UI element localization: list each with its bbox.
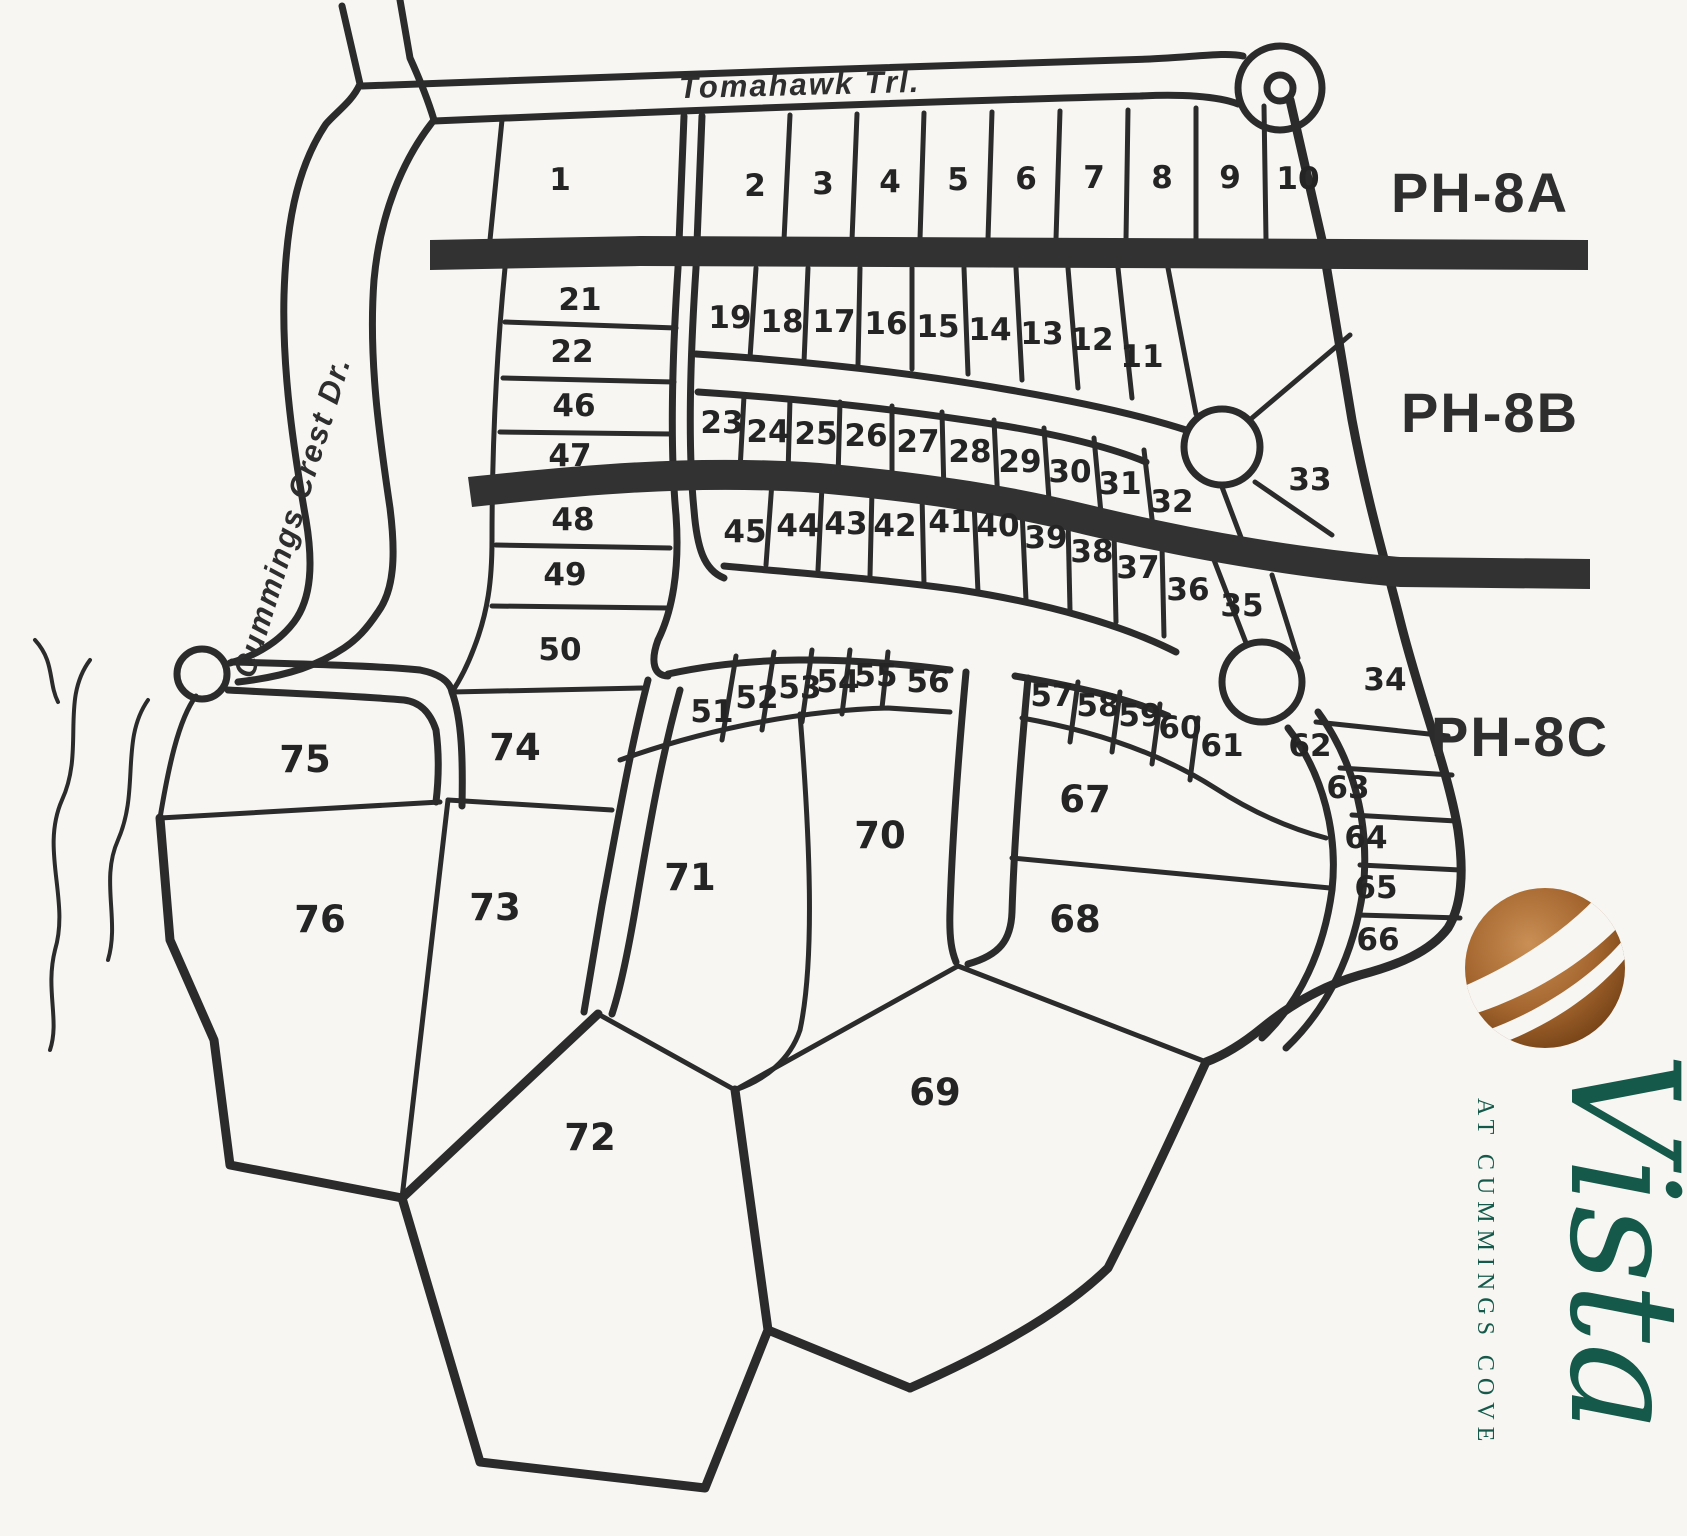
lot-51-label: 51 [690,694,733,730]
lot-9-label: 9 [1219,160,1241,196]
lot-44-label: 44 [776,508,819,544]
lot-56-label: 56 [906,664,949,700]
lot-21-label: 21 [558,282,601,318]
lot-22-label: 22 [550,334,593,370]
lot-37-label: 37 [1116,550,1159,586]
lot-7-label: 7 [1083,160,1105,196]
plat-map-page: 1234567891011121314151617181921224647484… [0,0,1687,1536]
lot-15-label: 15 [916,309,959,345]
lot-43-label: 43 [824,506,867,542]
phase-label-ph-8a: PH-8A [1391,161,1569,224]
lot-35-label: 35 [1220,588,1263,624]
lot-46-label: 46 [552,388,595,424]
lot-70-label: 70 [854,814,906,857]
logo-brand-text: Vista [1536,1052,1687,1432]
lot-2-label: 2 [744,168,766,204]
lot-5-label: 5 [947,162,969,198]
lot-34-label: 34 [1363,662,1406,698]
phase-label-ph-8c: PH-8C [1431,705,1609,768]
lot-61-label: 61 [1200,728,1243,764]
phase-bar-8a [430,236,1588,270]
lot-17-label: 17 [812,304,855,340]
logo-tagline-text: AT CUMMINGS COVE [1472,1098,1498,1448]
lot-10-label: 10 [1276,161,1319,197]
lot-38-label: 38 [1070,534,1113,570]
lot-74-label: 74 [489,726,541,769]
lot-72-label: 72 [564,1116,616,1159]
lot-36-label: 36 [1166,572,1209,608]
lot-18-label: 18 [760,304,803,340]
lot-1-label: 1 [549,162,571,198]
lot-67-label: 67 [1059,778,1111,821]
lot-28-label: 28 [948,434,991,470]
lot-33-label: 33 [1288,462,1331,498]
lot-50-label: 50 [538,632,581,668]
lot-6-label: 6 [1015,161,1037,197]
lot-3-label: 3 [812,166,834,202]
lot-27-label: 27 [896,424,939,460]
lot-25-label: 25 [794,416,837,452]
lot-57-label: 57 [1030,678,1073,714]
lot-45-label: 45 [723,514,766,550]
lot-40-label: 40 [976,508,1019,544]
plat-map-canvas: 1234567891011121314151617181921224647484… [0,0,1687,1536]
lot-55-label: 55 [854,658,897,694]
lot-13-label: 13 [1020,316,1063,352]
lot-8-label: 8 [1151,160,1173,196]
lot-16-label: 16 [864,306,907,342]
lot-32-label: 32 [1150,484,1193,520]
lot-24-label: 24 [746,414,789,450]
lot-73-label: 73 [469,886,521,929]
lot-30-label: 30 [1048,454,1091,490]
street-label-tomahawk: Tomahawk Trl. [679,64,921,105]
lot-39-label: 39 [1024,520,1067,556]
lot-31-label: 31 [1098,466,1141,502]
lot-59-label: 59 [1118,698,1161,734]
lot-19-label: 19 [708,300,751,336]
lot-53-label: 53 [778,670,821,706]
lot-14-label: 14 [968,312,1011,348]
lot-12-label: 12 [1070,322,1113,358]
lot-lines [160,106,1460,1488]
lot-23-label: 23 [700,405,743,441]
lot-75-label: 75 [279,738,331,781]
cul-de-sac-1 [1184,409,1260,485]
lot-42-label: 42 [873,508,916,544]
lot-64-label: 64 [1344,820,1387,856]
lot-66-label: 66 [1356,922,1399,958]
cummings-crest-bulb [177,649,227,699]
phase-label-ph-8b: PH-8B [1401,381,1579,444]
lot-58-label: 58 [1076,688,1119,724]
lot-11-label: 11 [1120,339,1163,375]
lot-65-label: 65 [1354,870,1397,906]
road-left-loop [228,662,462,806]
lot-68-label: 68 [1049,898,1101,941]
lot-69-label: 69 [909,1071,961,1114]
lot-41-label: 41 [928,504,971,540]
lot-52-label: 52 [735,680,778,716]
lot-4-label: 4 [879,164,901,200]
lot-26-label: 26 [844,418,887,454]
lot-54-label: 54 [816,664,859,700]
cul-de-sac-2 [1222,642,1302,722]
logo-vista-at-cummings-cove: Vista AT CUMMINGS COVE [1455,884,1687,1448]
lot-49-label: 49 [543,557,586,593]
lot-48-label: 48 [551,502,594,538]
lot-29-label: 29 [998,444,1041,480]
lot-62-label: 62 [1288,728,1331,764]
lot-47-label: 47 [548,438,591,474]
creek-lines [35,640,148,1050]
lot-76-label: 76 [294,898,346,941]
lot-60-label: 60 [1158,710,1201,746]
lot-63-label: 63 [1326,770,1369,806]
road-cummings-crest-drive [177,0,434,699]
lot-71-label: 71 [664,856,716,899]
